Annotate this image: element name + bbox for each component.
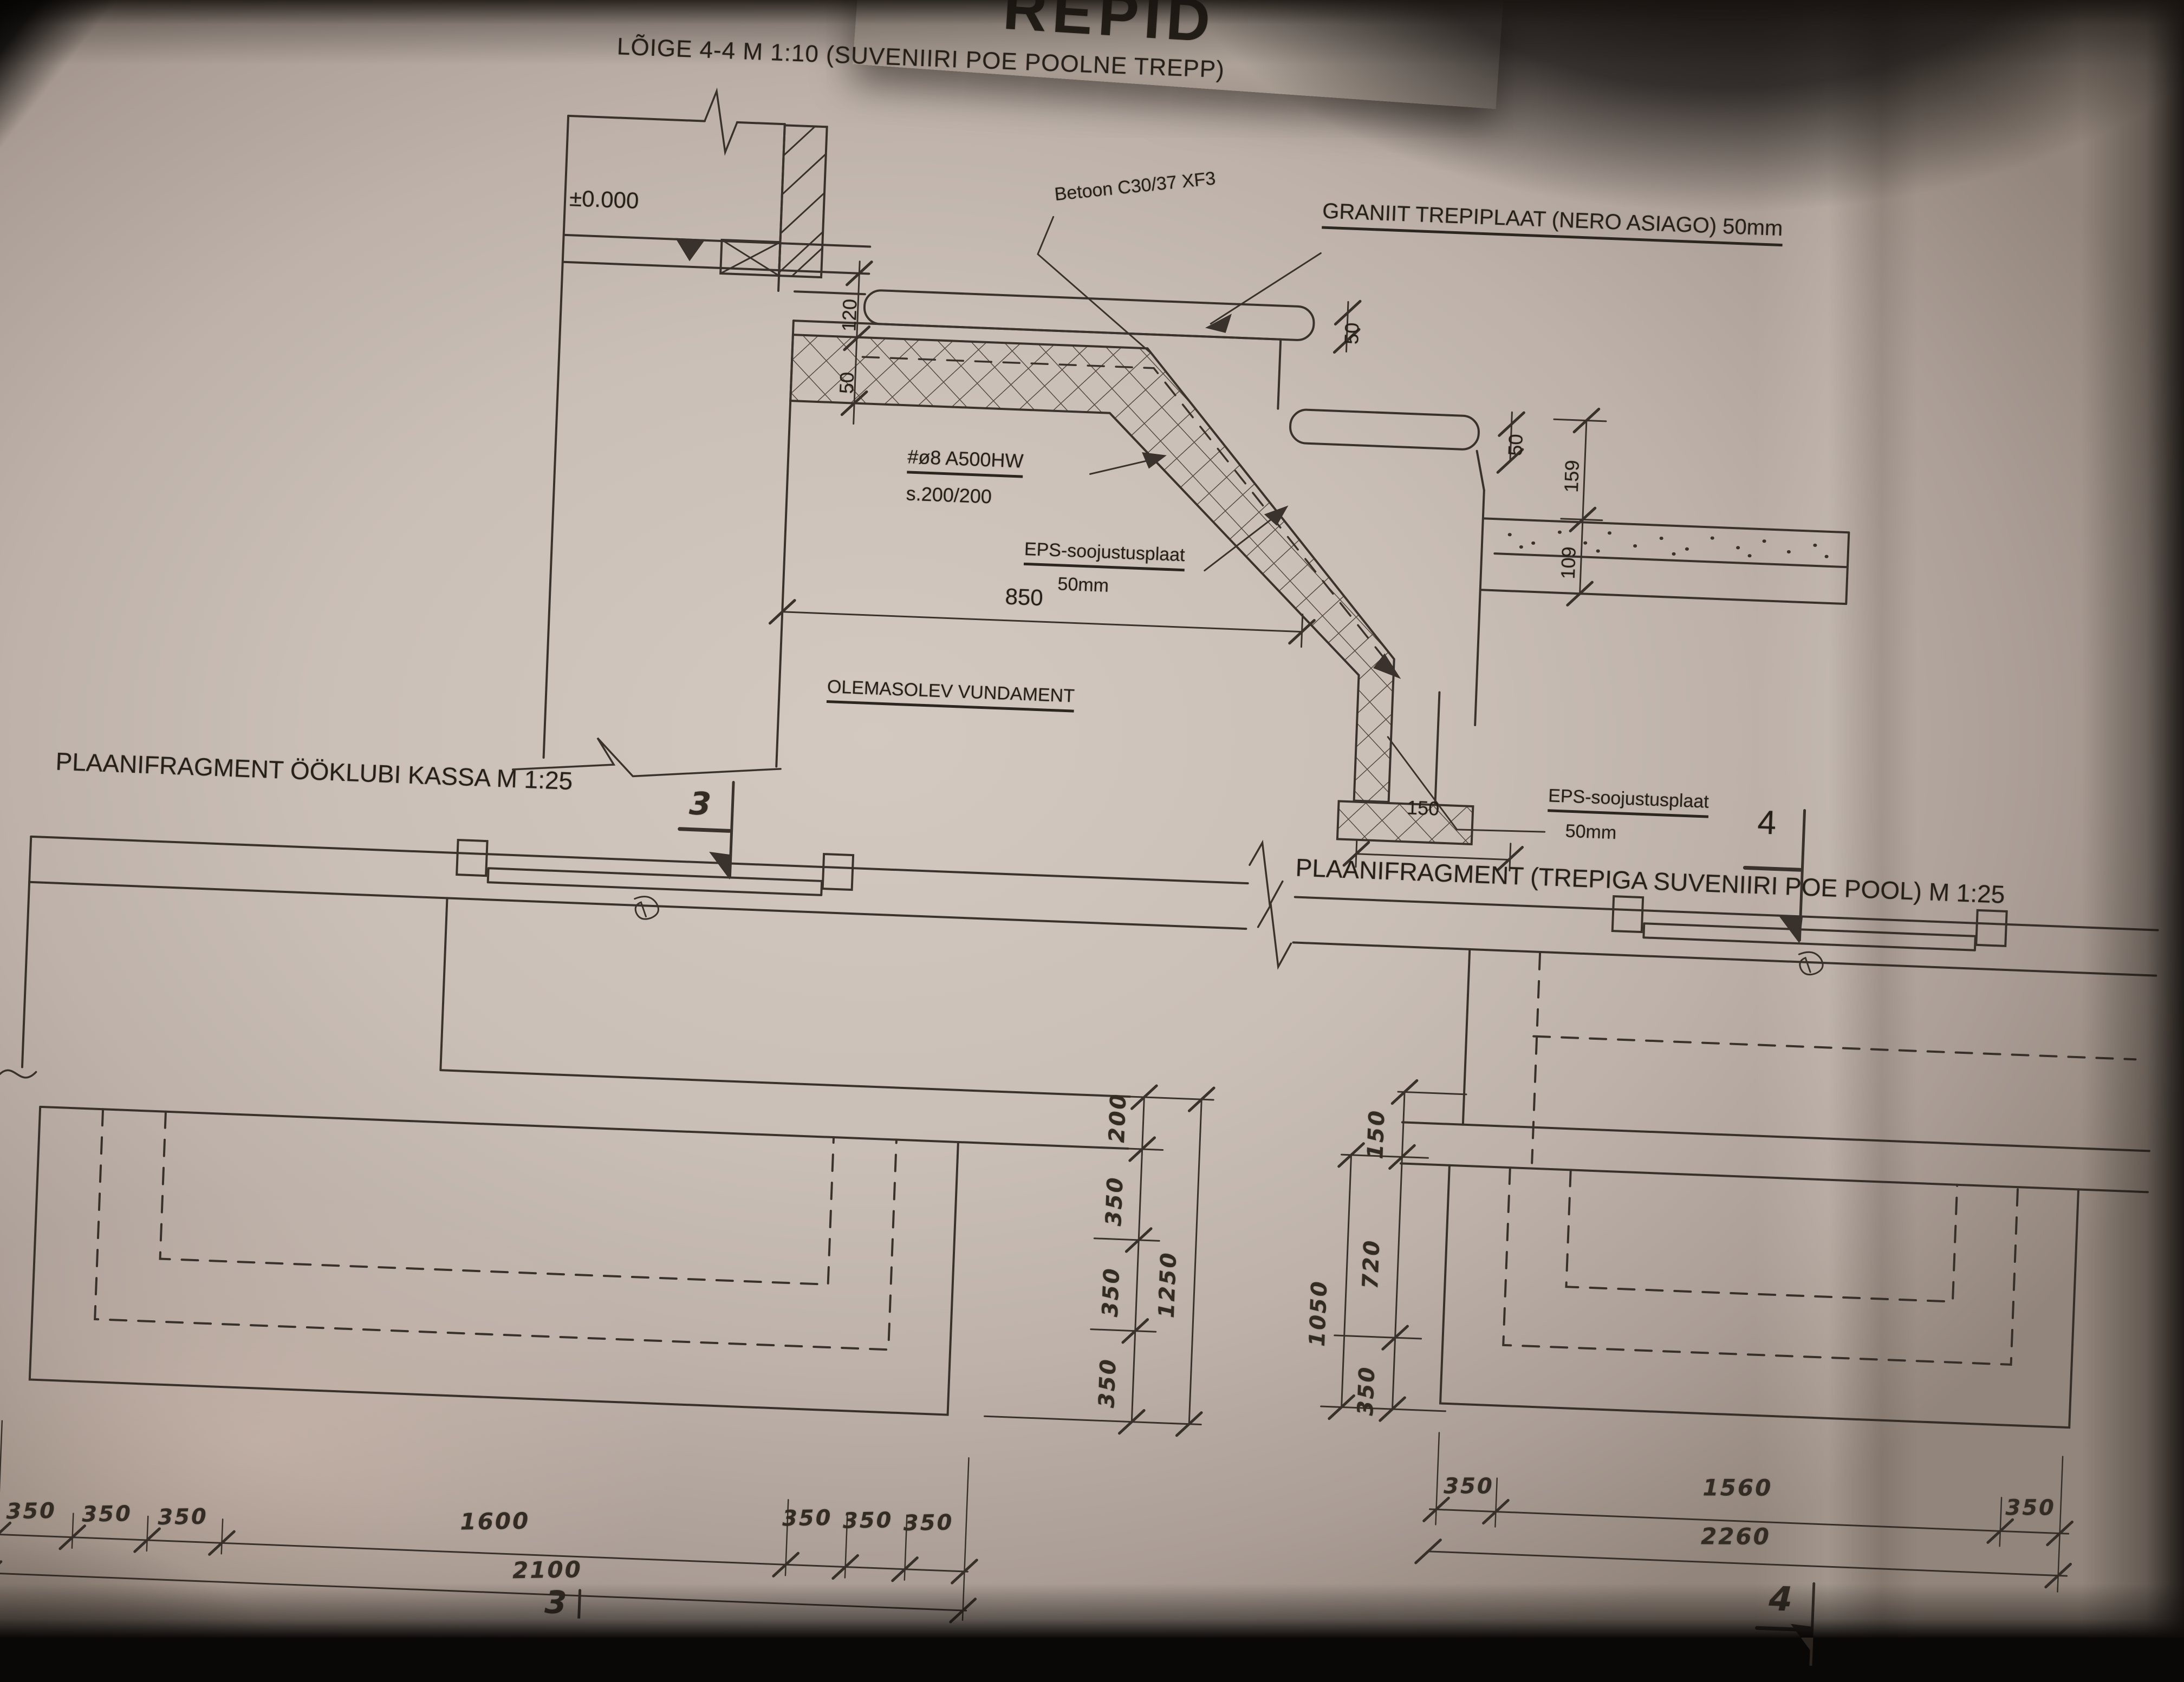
hdim-350-b: 350 — [82, 1501, 132, 1527]
door-jamb — [823, 854, 853, 890]
door-jamb — [1976, 910, 2006, 946]
level-label: ±0.000 — [569, 185, 639, 214]
vdim-150: 150 — [1363, 1109, 1390, 1159]
eps-insulation-band — [776, 335, 1406, 802]
dim-50-tread2-label: 50 — [1504, 434, 1527, 457]
wall-top-edge — [568, 116, 785, 124]
rdim-1560: 1560 — [1702, 1474, 1772, 1501]
marker3-bottom-line — [579, 1590, 580, 1619]
door-leaf — [488, 868, 822, 895]
steps-dashed-1 — [1503, 1168, 2018, 1365]
vdim-350-c: 350 — [1094, 1358, 1121, 1409]
eps1-label-line2: 50mm — [1057, 573, 1109, 597]
hdim-350-d: 350 — [782, 1505, 833, 1531]
wall-top-break — [704, 91, 738, 153]
granite-tread-2 — [1290, 409, 1479, 450]
hatched-strip-lines — [779, 125, 827, 277]
vdim-200: 200 — [1104, 1092, 1132, 1143]
steps-dashed-1 — [95, 1109, 896, 1349]
wall-left-edge — [1463, 950, 1470, 1125]
vdim-350-a: 350 — [1101, 1176, 1128, 1227]
dim-120-label: 120 — [837, 298, 861, 332]
hdim-350-c: 350 — [158, 1504, 208, 1530]
vdim-720: 720 — [1358, 1238, 1385, 1289]
lower-floor-lines — [1475, 490, 1850, 739]
dim-50-tread1-label: 50 — [1340, 322, 1364, 345]
left-edge — [22, 837, 31, 1067]
landing-edge — [1402, 1122, 2149, 1151]
marker4-bottom-line — [1811, 1583, 1814, 1666]
hidden-dashed-lines — [1529, 953, 2138, 1186]
dim-150-label: 150 — [1406, 796, 1440, 820]
door-hinge-squiggle — [634, 896, 659, 920]
steps-dashed-2 — [1566, 1170, 1957, 1301]
drawing-linework — [0, 0, 2184, 1679]
hdim-350-e: 350 — [843, 1508, 893, 1533]
vdim-chains — [1321, 1089, 1466, 1411]
hdim-2100: 2100 — [512, 1556, 583, 1584]
plan-right-marker4-bottom: 4 — [1768, 1579, 1795, 1619]
hatched-strip — [779, 125, 827, 277]
section-marker4-bar — [1745, 868, 1800, 870]
steps-solid — [30, 1107, 1128, 1422]
wall-band — [1293, 897, 2158, 975]
plan-left-marker3-bottom: 3 — [544, 1583, 569, 1621]
pit-concrete-edge — [1435, 692, 1440, 804]
marker3-top-bar — [680, 829, 730, 831]
dim-159-label: 159 — [1560, 460, 1584, 493]
rdim-350-b: 350 — [2005, 1495, 2056, 1520]
vdim-1250: 1250 — [1154, 1251, 1182, 1319]
wall-left-edge — [544, 116, 569, 758]
granite-leader-arrowhead — [1205, 312, 1232, 333]
hdim-350-f: 350 — [903, 1510, 954, 1536]
granite-leader — [1211, 249, 1321, 328]
rdim-2260: 2260 — [1701, 1523, 1771, 1549]
left-edge-break — [0, 1070, 36, 1078]
level-triangle — [677, 239, 703, 260]
door-leaf — [1643, 923, 1975, 950]
rdim-350-a: 350 — [1444, 1474, 1494, 1498]
vdim-1050: 1050 — [1305, 1280, 1332, 1347]
door-jamb — [457, 840, 487, 876]
drawing-sheet: LÕIGE 4-4 M 1:10 (SUVENIIRI POE POOLNE T… — [0, 0, 2184, 1679]
plan-right — [1266, 884, 2159, 1678]
plan-left-marker3-top: 3 — [688, 785, 713, 823]
section-marker4-label: 4 — [1757, 803, 1777, 842]
eps2-label-line2: 50mm — [1565, 821, 1617, 844]
steps-dashed-2 — [160, 1112, 834, 1285]
rebar-label-line2: s.200/200 — [906, 482, 992, 508]
dim-50-left-label: 50 — [835, 371, 859, 394]
wall-band — [29, 837, 1248, 929]
rebar-label-line1: #ø8 A500HW — [907, 445, 1024, 478]
level-lines — [564, 235, 870, 274]
band-break — [1246, 842, 1295, 967]
dim-850-label: 850 — [1005, 584, 1044, 611]
dim-109-label: 109 — [1557, 546, 1581, 580]
marker3-top-arrowhead — [708, 852, 732, 880]
bottom-chain-1 — [0, 1534, 967, 1572]
vdim-350-b: 350 — [1098, 1267, 1125, 1318]
hdim-1600: 1600 — [460, 1508, 530, 1535]
bottom-chain-2 — [1428, 1551, 2067, 1576]
vdim-350-r: 350 — [1353, 1365, 1380, 1416]
landing-edge — [440, 898, 1136, 1097]
hdim-350-a: 350 — [6, 1498, 56, 1524]
door-jamb — [1613, 896, 1643, 932]
